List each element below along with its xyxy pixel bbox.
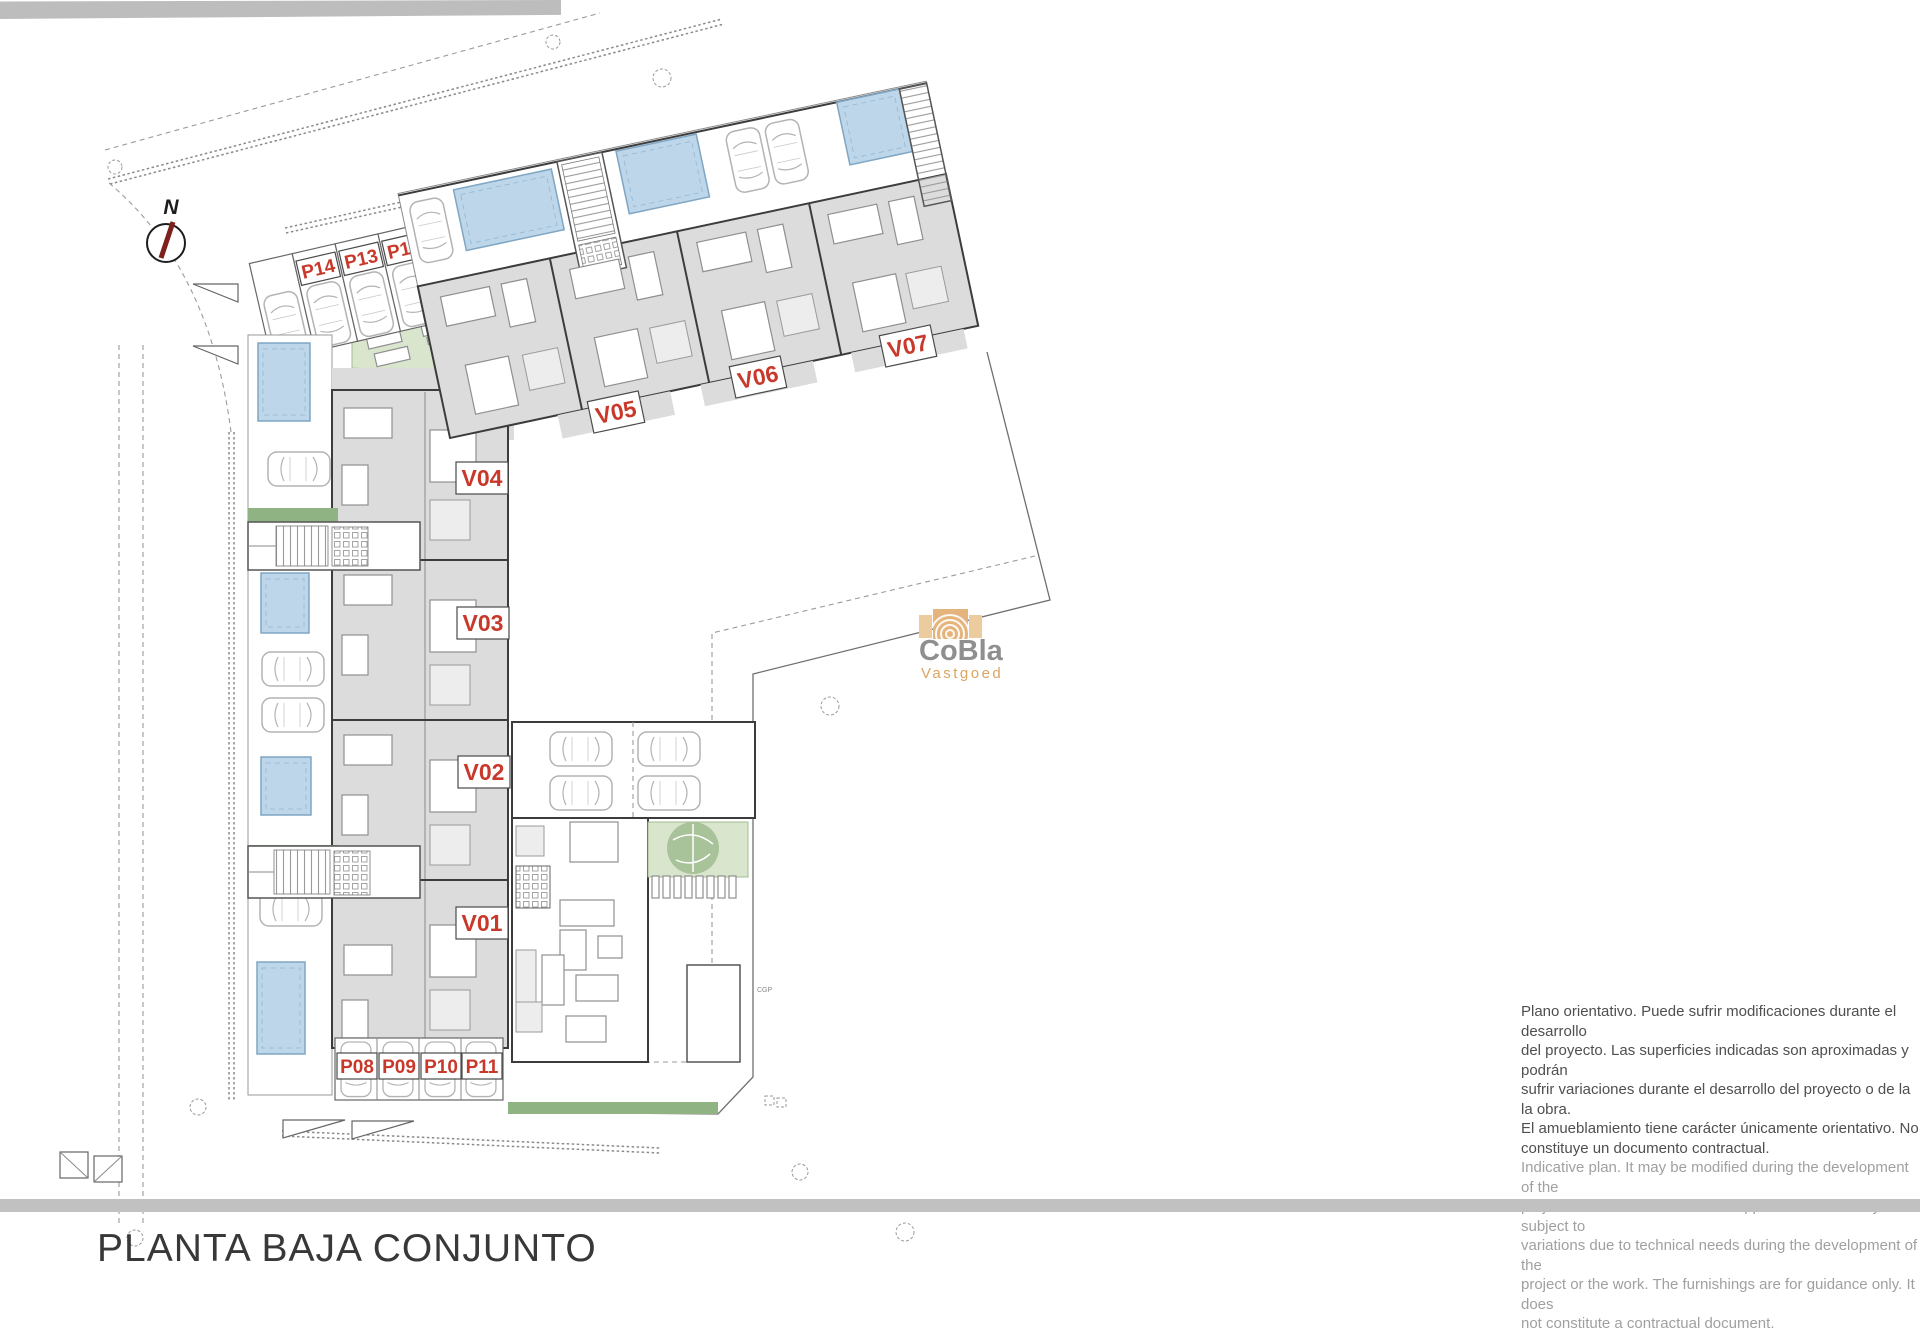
villa-pool-outline	[687, 965, 740, 1062]
garden-green-strip	[508, 1102, 718, 1114]
parking-label-p09: P09	[382, 1057, 416, 1078]
south-boundary-hatch	[190, 1096, 914, 1241]
disclaimer: Plano orientativo. Puede sufrir modifica…	[1521, 1002, 1920, 1334]
parking-row-p08-p11: P08 P09 P10 P11	[335, 1038, 503, 1100]
disclaimer-en-line: variations due to technical needs during…	[1521, 1236, 1920, 1275]
unit-label-v04: V04	[462, 465, 503, 491]
building-top-wing	[398, 81, 983, 461]
disclaimer-en-line: project or the work. The furnishings are…	[1521, 1275, 1920, 1314]
building-left-wing	[248, 335, 514, 1095]
utility-box-label: CGP	[757, 987, 773, 994]
parking-label-p11: P11	[466, 1057, 499, 1078]
disclaimer-es-line: El amueblamiento tiene carácter únicamen…	[1521, 1119, 1920, 1139]
logo-brand-text: CoBla	[919, 635, 1004, 667]
disclaimer-en-line: Indicative plan. It may be modified duri…	[1521, 1158, 1920, 1197]
pool	[261, 573, 309, 633]
villa-stairs	[516, 866, 550, 908]
page-title: PLANTA BAJA CONJUNTO	[97, 1227, 597, 1271]
disclaimer-es-line: sufrir variaciones durante el desarrollo…	[1521, 1080, 1920, 1119]
unit-label-v02: V02	[464, 759, 505, 785]
pool	[258, 343, 310, 421]
unit-label-v01: V01	[462, 910, 503, 936]
cobla-logo: CoBla Vastgoed	[919, 609, 1004, 682]
pool	[257, 962, 305, 1054]
stairs	[248, 846, 420, 898]
disclaimer-es-line: Plano orientativo. Puede sufrir modifica…	[1521, 1002, 1920, 1041]
pool	[261, 757, 311, 815]
parking-label-p08: P08	[340, 1057, 374, 1078]
disclaimer-es-line: del proyecto. Las superficies indicadas …	[1521, 1041, 1920, 1080]
unit-label-v03: V03	[463, 610, 504, 636]
west-boundary-hatch	[193, 284, 238, 1102]
parking-label-p10: P10	[424, 1057, 458, 1078]
disclaimer-en-line: not constitute a contractual document.	[1521, 1314, 1920, 1334]
north-label: N	[163, 196, 179, 219]
logo-subtitle-text: Vastgoed	[921, 665, 1003, 682]
left-road	[60, 345, 143, 1246]
north-arrow: N	[147, 196, 185, 262]
divider-bar	[0, 1199, 1920, 1212]
pergola	[652, 876, 736, 898]
villa: CGP	[508, 722, 773, 1114]
disclaimer-es-line: constituye un documento contractual.	[1521, 1139, 1920, 1159]
green-strip	[248, 508, 338, 523]
stairs	[248, 522, 420, 570]
